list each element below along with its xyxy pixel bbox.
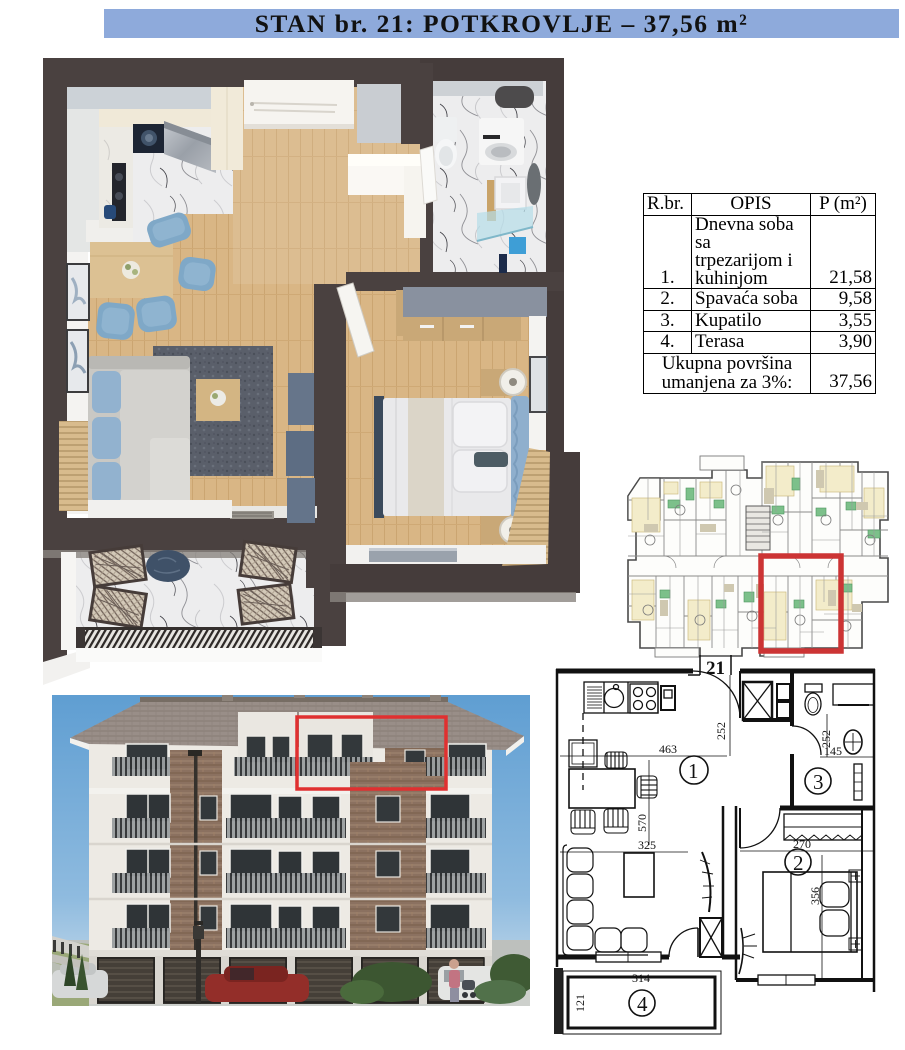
svg-text:121: 121	[573, 994, 587, 1012]
svg-text:4: 4	[637, 992, 648, 1016]
svg-text:463: 463	[659, 742, 677, 756]
svg-text:325: 325	[638, 838, 656, 852]
svg-text:314: 314	[632, 971, 650, 985]
svg-text:1: 1	[688, 759, 699, 783]
svg-text:145: 145	[824, 744, 842, 758]
svg-text:570: 570	[635, 814, 649, 832]
svg-text:3: 3	[813, 770, 824, 794]
svg-text:252: 252	[714, 722, 728, 740]
